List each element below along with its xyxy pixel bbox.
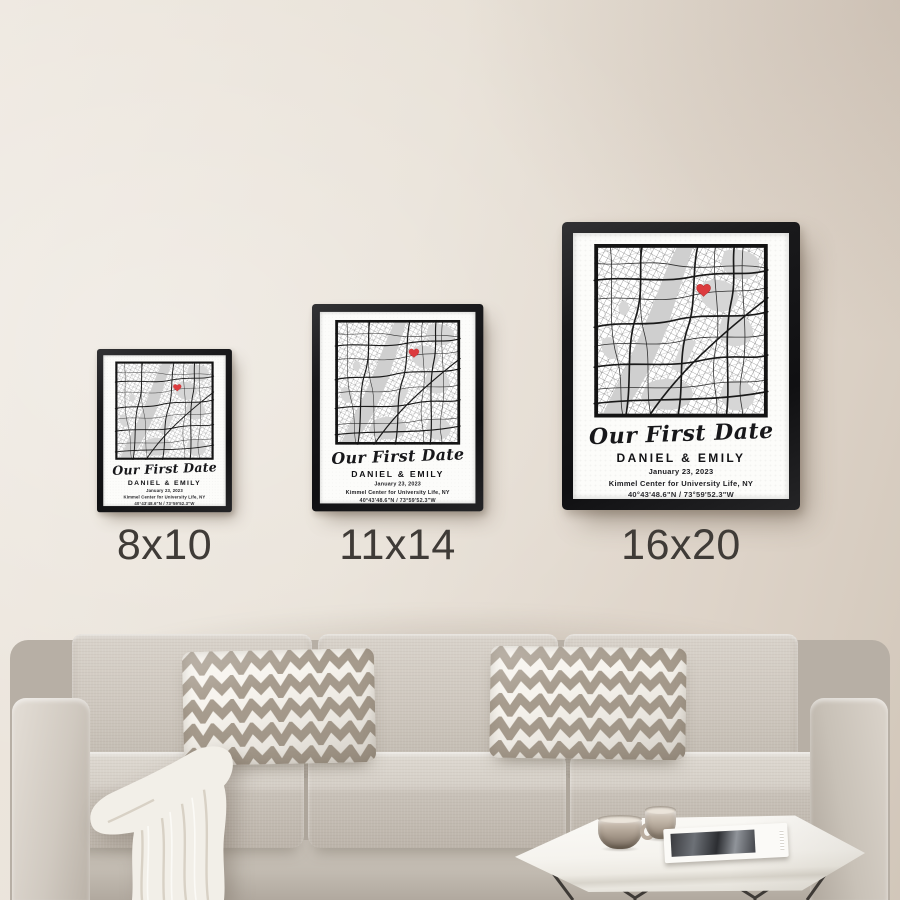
print-paper: Our First Date DANIEL & EMILY January 23… [103, 355, 225, 506]
print-date: January 23, 2023 [649, 467, 714, 476]
print-coordinates: 40°43'48.6"N / 73°59'52.3"W [134, 501, 194, 506]
print-location: Kimmel Center for University Life, NY [609, 479, 753, 488]
city-map [587, 244, 775, 418]
chevron-pillow-right [489, 646, 687, 761]
print-names: DANIEL & EMILY [617, 451, 746, 465]
product-scene: Our First Date DANIEL & EMILY January 23… [0, 0, 900, 900]
coffee-table-book [663, 823, 789, 863]
print-date: January 23, 2023 [374, 480, 421, 486]
framed-print-8x10: Our First Date DANIEL & EMILY January 23… [97, 349, 232, 512]
print-names: DANIEL & EMILY [351, 469, 444, 479]
print-names: DANIEL & EMILY [128, 479, 201, 487]
glass-mug-rim [645, 806, 676, 814]
size-label-8x10: 8x10 [97, 521, 232, 570]
print-frame: Our First Date DANIEL & EMILY January 23… [562, 222, 800, 510]
print-frame: Our First Date DANIEL & EMILY January 23… [97, 349, 232, 512]
size-label-16x20: 16x20 [562, 521, 800, 570]
print-paper: Our First Date DANIEL & EMILY January 23… [573, 233, 789, 499]
throw-blanket [78, 733, 238, 900]
print-coordinates: 40°43'48.6"N / 73°59'52.3"W [359, 497, 435, 503]
book-page-edges [779, 830, 784, 850]
print-title: Our First Date [112, 460, 217, 478]
city-map [111, 361, 218, 459]
print-title: Our First Date [588, 417, 773, 449]
print-location: Kimmel Center for University Life, NY [346, 489, 450, 495]
teacup-rim [598, 815, 642, 823]
print-location: Kimmel Center for University Life, NY [124, 494, 206, 499]
framed-print-16x20: Our First Date DANIEL & EMILY January 23… [562, 222, 800, 510]
framed-print-11x14: Our First Date DANIEL & EMILY January 23… [312, 304, 483, 511]
print-date: January 23, 2023 [146, 488, 183, 493]
teacup [598, 818, 642, 849]
book-cover-photo [670, 829, 755, 856]
print-frame: Our First Date DANIEL & EMILY January 23… [312, 304, 483, 511]
print-paper: Our First Date DANIEL & EMILY January 23… [320, 312, 476, 504]
size-label-11x14: 11x14 [312, 521, 483, 570]
print-coordinates: 40°43'48.6"N / 73°59'52.3"W [628, 490, 734, 499]
print-title: Our First Date [331, 445, 465, 468]
city-map [330, 320, 465, 445]
